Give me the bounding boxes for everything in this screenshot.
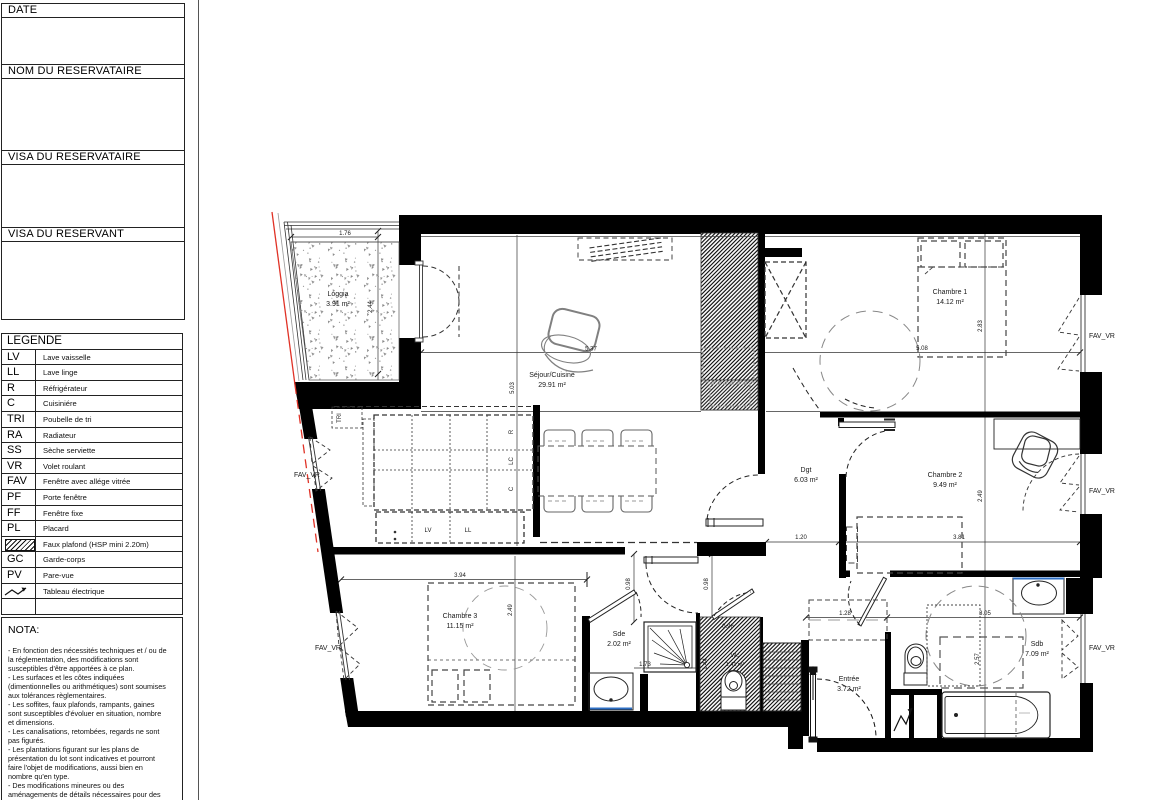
svg-text:2.49: 2.49	[508, 604, 514, 616]
svg-text:2.44: 2.44	[368, 301, 374, 313]
svg-text:0.98: 0.98	[704, 578, 710, 590]
svg-text:14.12 m²: 14.12 m²	[936, 299, 964, 306]
svg-text:3.94: 3.94	[454, 573, 466, 579]
svg-text:0.98: 0.98	[626, 578, 632, 590]
svg-text:LV: LV	[425, 528, 432, 534]
svg-text:R: R	[509, 429, 515, 434]
svg-text:Sde: Sde	[613, 631, 626, 638]
svg-text:1.73: 1.73	[639, 662, 651, 668]
svg-text:FAV_VR: FAV_VR	[1089, 333, 1115, 340]
svg-text:1.28: 1.28	[839, 611, 851, 617]
svg-text:Chambre 3: Chambre 3	[443, 613, 478, 620]
svg-text:FAV_VR: FAV_VR	[315, 645, 341, 652]
svg-text:3.81: 3.81	[953, 535, 965, 541]
svg-text:5.08: 5.08	[916, 346, 928, 352]
svg-text:Entrée: Entrée	[839, 676, 860, 683]
svg-text:FAV_VR: FAV_VR	[294, 472, 320, 479]
svg-text:Séjour/Cuisine: Séjour/Cuisine	[529, 372, 575, 379]
svg-text:Chambre 2: Chambre 2	[928, 472, 963, 479]
svg-text:3.72 m²: 3.72 m²	[837, 686, 861, 693]
svg-text:7.09 m²: 7.09 m²	[1025, 651, 1049, 658]
svg-text:2.02 m²: 2.02 m²	[607, 641, 631, 648]
svg-text:1.41 m²: 1.41 m²	[726, 662, 745, 668]
svg-text:C: C	[509, 486, 515, 491]
svg-text:2.49: 2.49	[978, 490, 984, 502]
svg-text:5.37: 5.37	[585, 347, 597, 353]
svg-text:1.76: 1.76	[339, 231, 351, 237]
svg-text:2.83: 2.83	[978, 320, 984, 332]
svg-text:29.91 m²: 29.91 m²	[538, 382, 566, 389]
svg-text:Dgt: Dgt	[801, 467, 812, 474]
svg-text:2.57: 2.57	[975, 653, 981, 665]
svg-text:LC: LC	[509, 456, 515, 464]
svg-text:FAV_VR: FAV_VR	[1089, 645, 1115, 652]
svg-text:6.03 m²: 6.03 m²	[794, 477, 818, 484]
svg-text:5.03: 5.03	[510, 382, 516, 394]
svg-text:3.05: 3.05	[979, 611, 991, 617]
svg-text:Chambre 1: Chambre 1	[933, 289, 968, 296]
svg-text:LL: LL	[465, 528, 472, 534]
svg-text:Wc: Wc	[731, 653, 739, 659]
svg-text:1.44: 1.44	[703, 658, 709, 670]
svg-text:TRI: TRI	[337, 413, 343, 423]
svg-text:0.96: 0.96	[722, 624, 734, 630]
svg-text:1.20: 1.20	[795, 535, 807, 541]
svg-text:Sdb: Sdb	[1031, 641, 1044, 648]
svg-text:11.15 m²: 11.15 m²	[446, 623, 474, 630]
svg-text:FAV_VR: FAV_VR	[1089, 488, 1115, 495]
svg-text:9.49 m²: 9.49 m²	[933, 482, 957, 489]
svg-text:Loggia: Loggia	[327, 291, 348, 298]
svg-text:3.91 m²: 3.91 m²	[326, 301, 350, 308]
